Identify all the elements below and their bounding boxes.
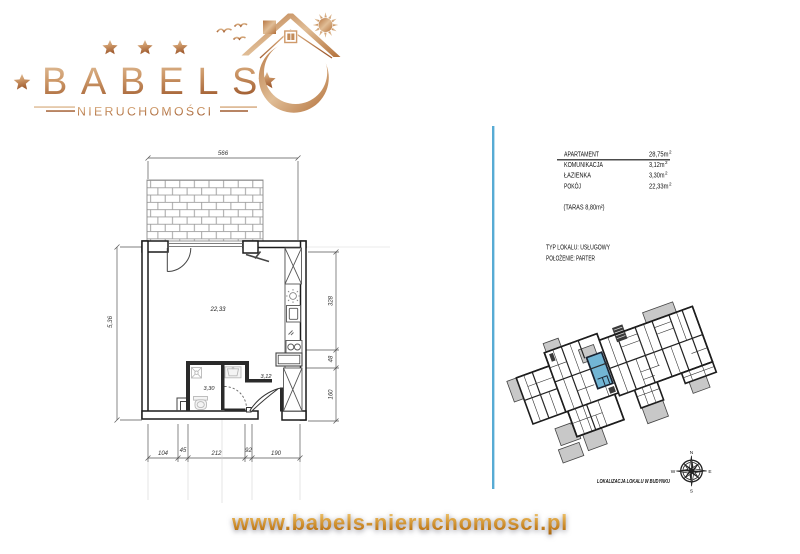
svg-text:www.babels-nieruchomosci.pl: www.babels-nieruchomosci.pl [231,510,568,535]
svg-text:160: 160 [329,389,335,400]
svg-text:KOMUNIKACJA: KOMUNIKACJA [564,160,603,169]
svg-text:BABELS: BABELS [42,61,271,103]
svg-text:212: 212 [210,451,222,457]
svg-text:ŁAZIENKA: ŁAZIENKA [564,171,591,180]
svg-text:5,36: 5,36 [107,315,114,328]
svg-text:104: 104 [158,451,169,457]
svg-text:LOKALIZACJA LOKALU W BUDYNKU: LOKALIZACJA LOKALU W BUDYNKU [597,479,671,485]
svg-text:45: 45 [180,448,187,454]
svg-text:22,33m: 22,33m [649,182,669,191]
svg-text:2: 2 [665,160,668,165]
svg-text:566: 566 [218,150,229,157]
svg-text:NIERUCHOMOŚCI: NIERUCHOMOŚCI [77,104,213,119]
svg-text:E: E [708,469,711,475]
svg-text:W: W [671,469,676,475]
svg-text:48: 48 [329,355,335,362]
svg-text:POŁOŻENIE: PARTER: POŁOŻENIE: PARTER [546,254,595,263]
svg-text:N: N [690,450,694,456]
svg-text:22,33: 22,33 [209,307,226,313]
svg-text:POKÓJ: POKÓJ [564,182,581,191]
svg-text:3,30m: 3,30m [649,171,665,180]
svg-text:328: 328 [329,295,335,306]
svg-text:3,12m: 3,12m [649,160,665,169]
svg-text:3,30: 3,30 [204,386,216,392]
svg-text:S: S [690,489,693,495]
svg-text:190: 190 [271,451,282,457]
svg-text:92: 92 [245,448,252,454]
svg-text:2: 2 [669,150,672,155]
svg-text:2: 2 [669,182,672,187]
svg-text:APARTAMENT: APARTAMENT [564,150,599,159]
svg-text:(TARAS 8,80m²): (TARAS 8,80m²) [564,203,605,212]
svg-text:28,75m: 28,75m [649,150,669,159]
svg-text:3,12: 3,12 [261,374,273,380]
svg-text:TYP LOKALU: USŁUGOWY: TYP LOKALU: USŁUGOWY [546,243,610,252]
svg-text:2: 2 [665,171,668,176]
